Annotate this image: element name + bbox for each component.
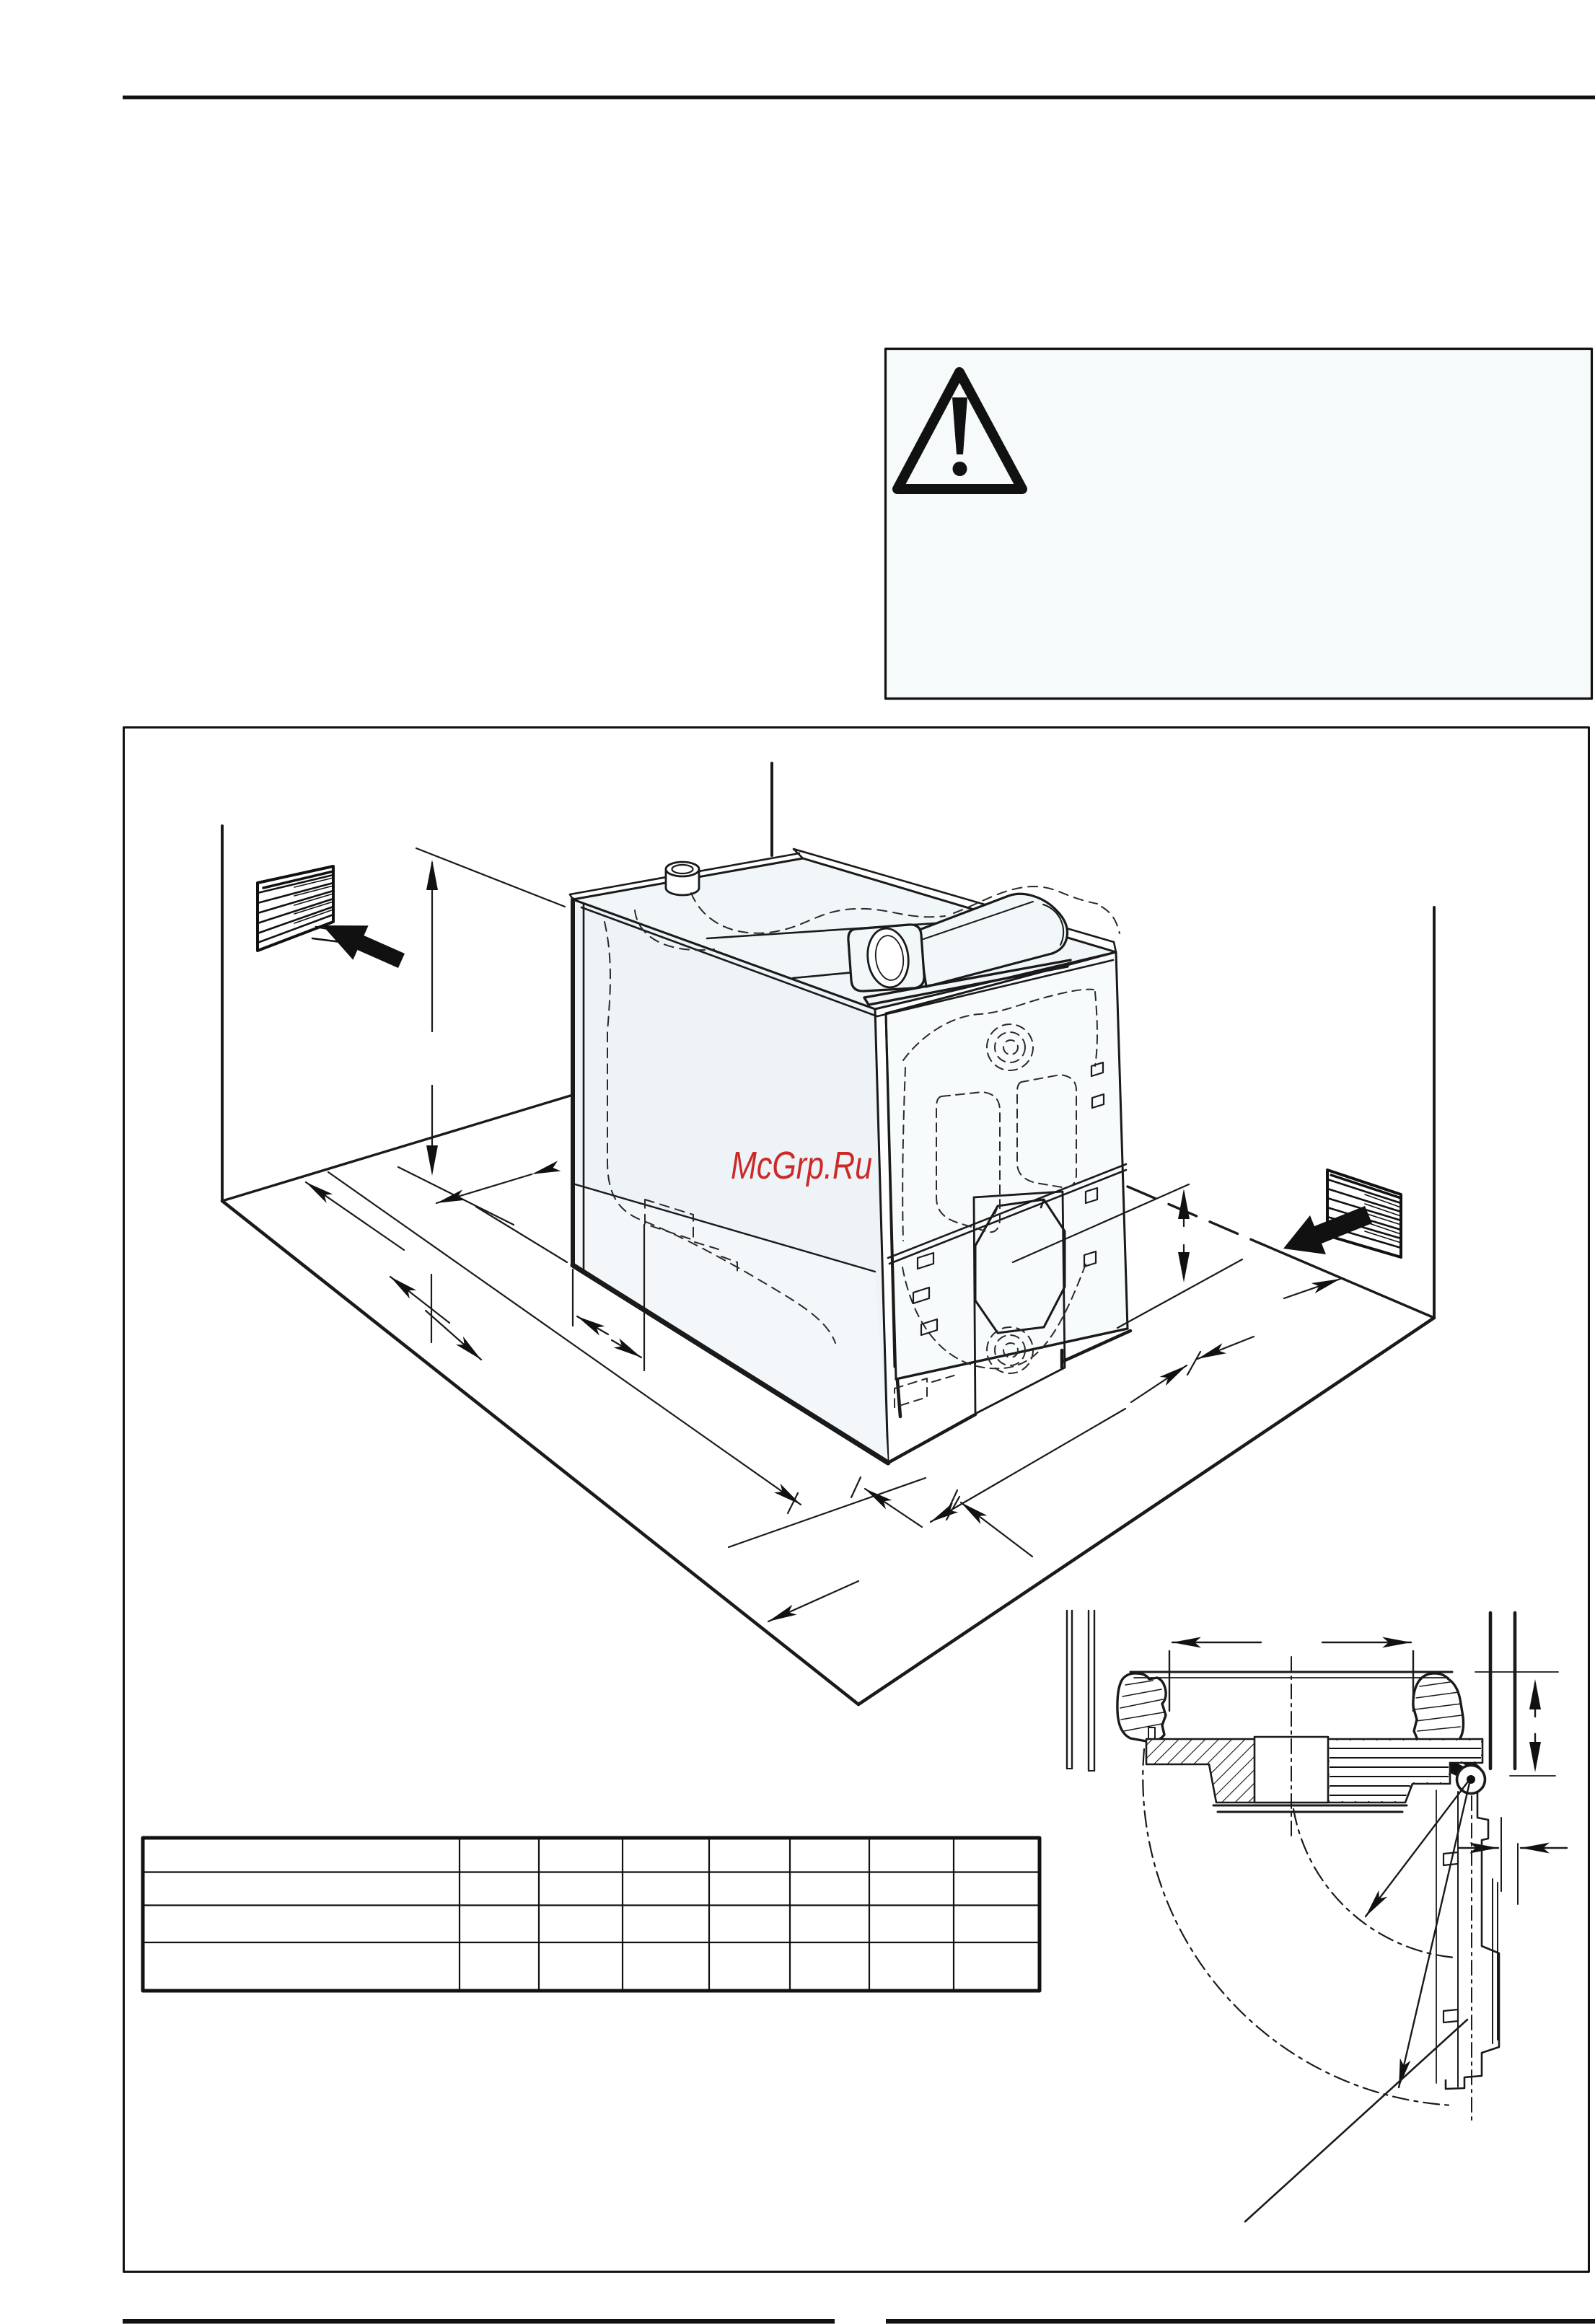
svg-text:McGrp.Ru: McGrp.Ru [731,1144,872,1187]
